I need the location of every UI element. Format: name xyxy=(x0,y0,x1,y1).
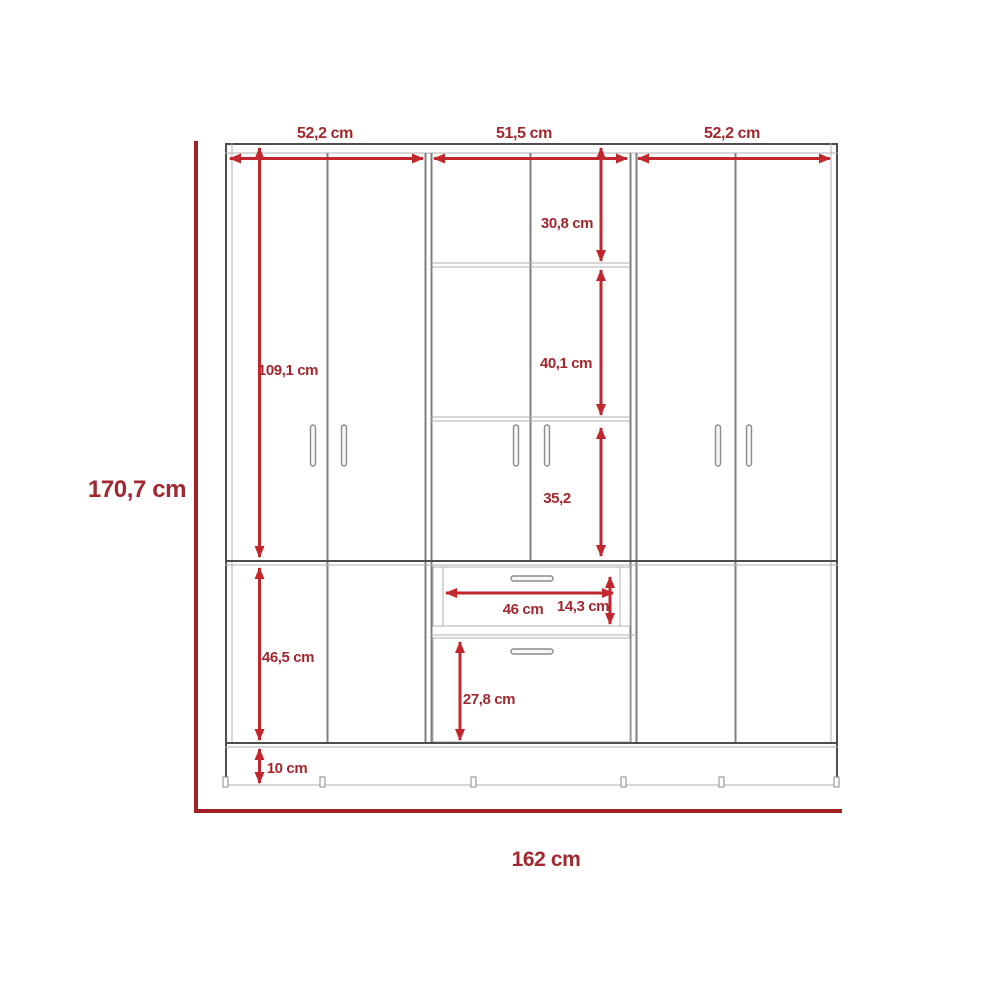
foot-icon xyxy=(223,777,228,787)
dim-label-right-width: 52,2 cm xyxy=(704,125,760,142)
dim-label-drawer-height: 14,3 cm xyxy=(557,598,609,615)
foot-icon xyxy=(621,777,626,787)
dim-label-middle-shelf: 40,1 cm xyxy=(540,355,592,372)
dim-label-lower-section: 46,5 cm xyxy=(262,649,314,666)
door-handle-icon xyxy=(514,425,519,466)
foot-icon xyxy=(834,777,839,787)
furniture-dimension-diagram: 52,2 cm 51,5 cm 52,2 cm 170,7 cm 162 cm … xyxy=(0,0,1000,1000)
door-handle-icon xyxy=(716,425,721,466)
dim-label-middle-width: 51,5 cm xyxy=(496,125,552,142)
foot-icon xyxy=(320,777,325,787)
dim-label-total-height: 170,7 cm xyxy=(88,476,186,503)
drawer-handle-icon xyxy=(511,576,553,581)
dimension-labels: 52,2 cm 51,5 cm 52,2 cm 170,7 cm 162 cm … xyxy=(88,125,760,871)
drawer-handle-icon xyxy=(511,649,553,654)
dim-label-total-width: 162 cm xyxy=(512,848,581,871)
door-handle-icon xyxy=(747,425,752,466)
dim-label-drawer-width: 46 cm xyxy=(503,601,544,618)
foot-icon xyxy=(471,777,476,787)
door-handle-icon xyxy=(311,425,316,466)
dim-label-base-height: 10 cm xyxy=(267,760,308,777)
dimension-lines xyxy=(196,141,842,811)
dim-label-bottom-door: 27,8 cm xyxy=(463,691,515,708)
overall-dimension-frame xyxy=(196,141,842,811)
door-handle-icon xyxy=(545,425,550,466)
dim-label-upper-door-height: 109,1 cm xyxy=(258,362,318,379)
foot-icon xyxy=(719,777,724,787)
dim-label-top-shelf: 30,8 cm xyxy=(541,215,593,232)
dim-label-left-width: 52,2 cm xyxy=(297,125,353,142)
wardrobe-diagram-svg: 52,2 cm 51,5 cm 52,2 cm 170,7 cm 162 cm … xyxy=(0,0,1000,1000)
door-handle-icon xyxy=(342,425,347,466)
dim-label-lower-cabinet: 35,2 xyxy=(543,490,571,507)
